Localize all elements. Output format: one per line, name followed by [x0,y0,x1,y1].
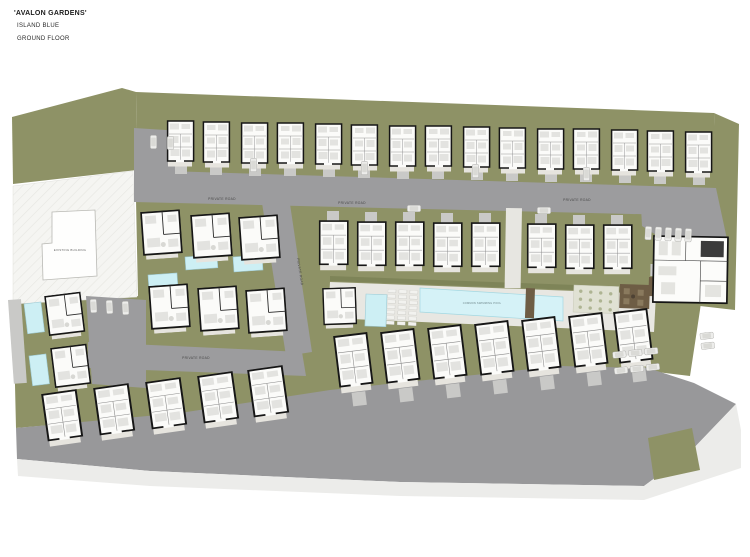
villa-unit [246,288,287,338]
car-icon [537,207,550,213]
private-pool [24,302,45,334]
floor-label: GROUND FLOOR [17,36,87,42]
car-icon [583,167,589,180]
pool-walkway [505,208,522,288]
car-icon [250,158,256,171]
villa-unit [198,372,239,429]
car-icon [122,301,129,315]
villa-unit [390,126,416,179]
site-plan-page: 'AVALON GARDENS' ISLAND BLUE GROUND FLOO… [0,0,750,557]
villa-unit [612,130,638,183]
car-icon [361,161,367,174]
pool-bridge-deck [525,288,535,318]
top-villa-row [168,121,712,185]
villa-unit [316,124,342,177]
road-label: PRIVATE ROAD [338,201,366,205]
small-pool [365,294,387,327]
drawing-title-block: 'AVALON GARDENS' ISLAND BLUE GROUND FLOO… [14,10,87,42]
villa-unit [425,126,451,179]
villa-unit [198,286,239,336]
villa-unit [191,213,232,263]
villa-unit [149,284,190,334]
pool-pavilion [323,288,357,329]
clubhouse-building [650,236,728,303]
car-icon [472,164,478,177]
villa-unit [42,390,83,447]
road-label: PRIVATE ROAD [563,198,591,202]
villa-unit [94,384,135,441]
car-icon [150,135,156,148]
common-pool-label: COMMON SWIMMING POOL [463,301,502,305]
landscape-wedge-topleft [12,88,137,184]
road-label: PRIVATE ROAD [182,356,210,360]
villa-unit [647,131,673,184]
villa-unit [141,210,182,260]
villa-unit [686,132,712,185]
project-title: 'AVALON GARDENS' [14,10,87,17]
site-plan-drawing: EXISTING BUILDING COMMON SWIMMING POOL [0,0,750,557]
existing-building-label: EXISTING BUILDING [54,248,87,252]
villa-unit [538,129,564,182]
road-label: PRIVATE ROAD [208,197,236,201]
parking-bay-right [700,332,715,350]
villa-unit [146,378,187,435]
villa-unit [499,128,525,181]
private-pool [29,354,50,386]
villa-unit [239,215,280,265]
villa-unit [248,366,289,423]
car-icon [90,299,97,313]
villa-unit [277,123,303,176]
villa-unit [45,293,85,340]
development-name: ISLAND BLUE [17,23,87,29]
car-icon [106,300,113,314]
villa-unit [203,122,229,175]
paved-plaza [573,285,619,314]
villa-unit [51,345,91,392]
car-icon [167,136,173,149]
car-icon [407,205,420,211]
